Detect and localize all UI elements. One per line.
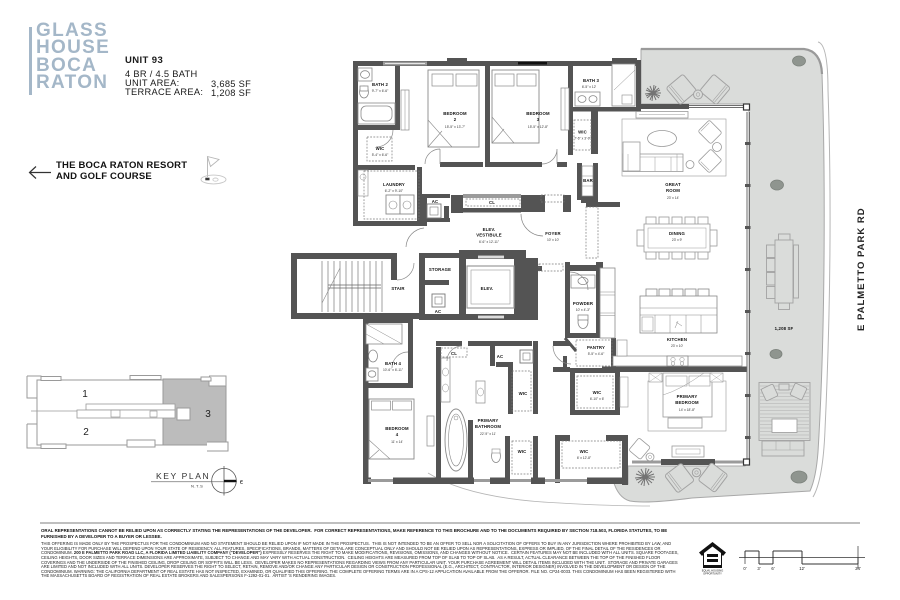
svg-text:WIC: WIC [376, 146, 385, 151]
svg-text:WIC: WIC [519, 391, 528, 396]
svg-text:LAUNDRY: LAUNDRY [383, 182, 405, 187]
svg-text:WIC: WIC [580, 449, 589, 454]
svg-text:10' x 10': 10' x 10' [547, 238, 559, 242]
svg-text:STORAGE: STORAGE [429, 267, 451, 272]
svg-text:BEDROOM: BEDROOM [526, 111, 550, 116]
svg-text:KITCHEN: KITCHEN [667, 337, 687, 342]
svg-text:2: 2 [83, 427, 89, 438]
svg-text:6' x 12'-8": 6' x 12'-8" [577, 456, 592, 460]
svg-text:3: 3 [537, 117, 540, 122]
svg-text:AC: AC [432, 199, 439, 204]
svg-text:6'-10" x 6': 6'-10" x 6' [590, 397, 605, 401]
svg-text:15'-5" x 12'-8": 15'-5" x 12'-8" [528, 125, 549, 129]
svg-text:PANTRY: PANTRY [587, 345, 605, 350]
svg-text:5'-5" x 4'-6": 5'-5" x 4'-6" [588, 352, 605, 356]
svg-text:CL: CL [489, 200, 495, 205]
svg-text:3': 3' [757, 566, 760, 571]
svg-text:GREAT: GREAT [665, 182, 681, 187]
svg-text:14' x 18'-8": 14' x 18'-8" [679, 408, 696, 412]
svg-text:BATH 2: BATH 2 [372, 82, 389, 87]
svg-text:OPPORTUNITY: OPPORTUNITY [703, 571, 722, 575]
svg-text:POWDER: POWDER [573, 301, 594, 306]
svg-text:BATH 3: BATH 3 [583, 78, 600, 83]
svg-text:5'-4" x 6'-6": 5'-4" x 6'-6" [372, 153, 389, 157]
svg-text:10' x 4'-3": 10' x 4'-3" [576, 308, 591, 312]
svg-text:15'-5" x 13'-7": 15'-5" x 13'-7" [445, 125, 466, 129]
svg-text:PRIMARY: PRIMARY [478, 418, 499, 423]
svg-text:ROOM: ROOM [666, 188, 680, 193]
svg-text:1,208 SF: 1,208 SF [775, 326, 794, 331]
svg-text:22'-9" x 11': 22'-9" x 11' [480, 432, 496, 436]
svg-text:10'-6" x 6'-11": 10'-6" x 6'-11" [383, 368, 404, 372]
svg-text:ELEV.: ELEV. [483, 227, 496, 232]
svg-text:BEDROOM: BEDROOM [443, 111, 467, 116]
svg-text:E PALMETTO PARK RD: E PALMETTO PARK RD [856, 207, 867, 331]
svg-text:12': 12' [799, 566, 805, 571]
svg-text:24': 24' [855, 566, 861, 571]
svg-text:AC: AC [435, 309, 442, 314]
svg-text:4: 4 [396, 432, 399, 437]
svg-text:WIC: WIC [578, 130, 587, 135]
svg-text:7'-6" x 3'-9": 7'-6" x 3'-9" [574, 137, 591, 141]
svg-text:6': 6' [771, 566, 774, 571]
svg-text:ELEV.: ELEV. [481, 286, 494, 291]
svg-text:23' x 9': 23' x 9' [672, 238, 683, 242]
svg-text:BAR: BAR [583, 178, 594, 183]
svg-text:6'-6" x 12'-11": 6'-6" x 12'-11" [479, 240, 500, 244]
svg-text:PRIMARY: PRIMARY [677, 394, 698, 399]
svg-text:1: 1 [82, 389, 88, 400]
svg-text:9'-7" x 6'-6": 9'-7" x 6'-6" [372, 89, 389, 93]
svg-text:BATH 4: BATH 4 [385, 361, 402, 366]
svg-text:WIC: WIC [593, 390, 602, 395]
svg-text:DINING: DINING [669, 231, 685, 236]
svg-text:BEDROOM: BEDROOM [385, 426, 409, 431]
svg-text:3: 3 [205, 409, 211, 420]
svg-text:0': 0' [743, 566, 746, 571]
svg-text:FOYER: FOYER [545, 231, 561, 236]
svg-text:6'-5" x 12': 6'-5" x 12' [582, 85, 597, 89]
svg-text:11' x 14': 11' x 14' [391, 440, 403, 444]
svg-text:CL: CL [451, 351, 457, 356]
svg-text:E: E [240, 480, 243, 485]
svg-text:23' x 10': 23' x 10' [671, 344, 683, 348]
svg-text:N.T.S: N.T.S [191, 484, 203, 489]
svg-text:BATHROOM: BATHROOM [475, 424, 501, 429]
svg-text:BEDROOM: BEDROOM [675, 400, 699, 405]
svg-text:23' x 14': 23' x 14' [667, 196, 679, 200]
svg-text:STAIR: STAIR [391, 286, 405, 291]
svg-text:AC: AC [497, 354, 504, 359]
svg-text:6'-2" x 9'-10": 6'-2" x 9'-10" [385, 189, 404, 193]
svg-text:2: 2 [454, 117, 457, 122]
svg-text:WIC: WIC [518, 449, 527, 454]
svg-text:KEY PLAN: KEY PLAN [156, 471, 210, 481]
svg-text:VESTIBULE: VESTIBULE [476, 233, 501, 238]
